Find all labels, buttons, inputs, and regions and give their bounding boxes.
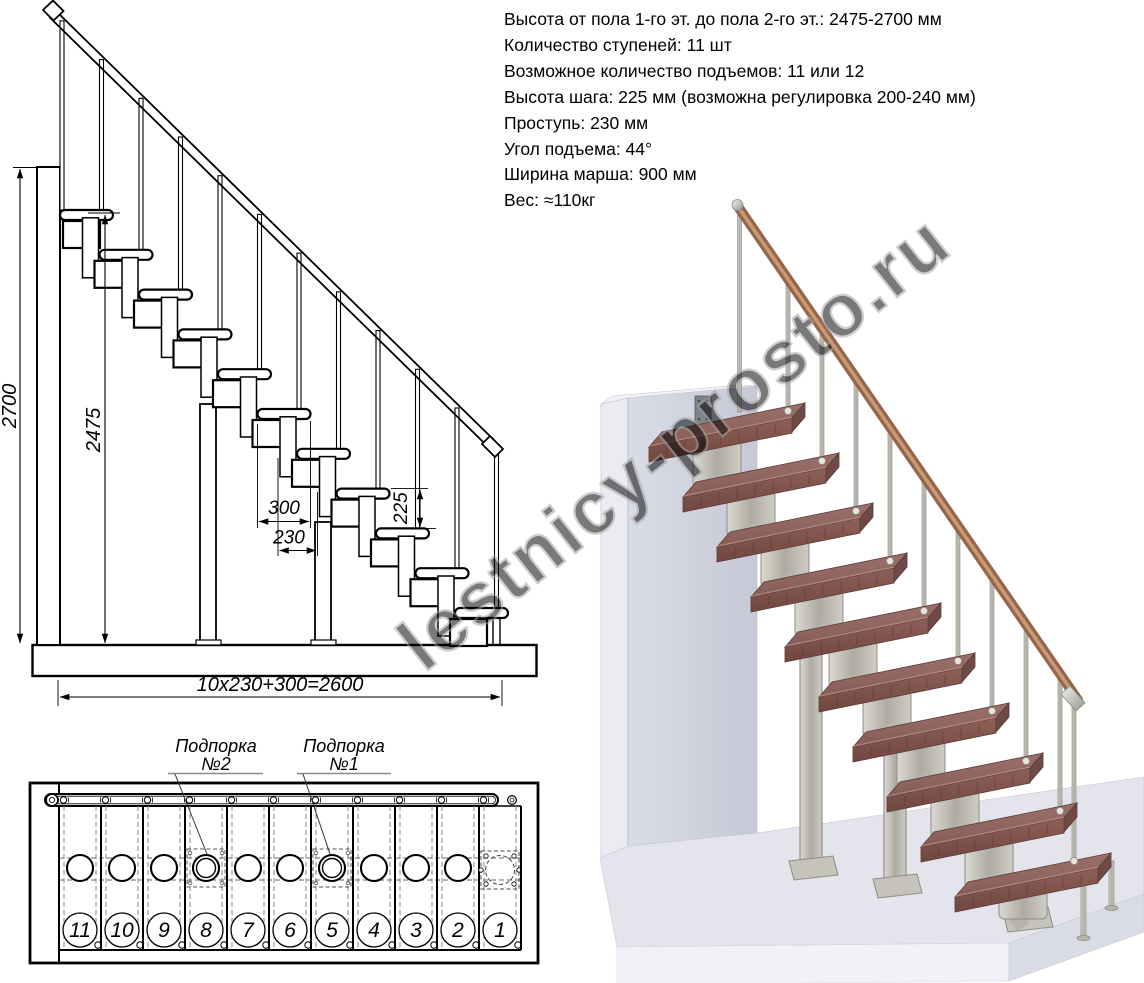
bracket-bolt: [698, 418, 701, 421]
handrail-line: [56, 11, 496, 442]
baluster-3d: [1024, 624, 1028, 761]
support2-label-line1: Подпорка: [175, 736, 256, 756]
baluster-3d: [956, 526, 960, 662]
plan-post-circle: [151, 855, 177, 881]
baluster-joint-3d: [1056, 807, 1063, 814]
baluster-3d: [738, 212, 742, 412]
elevation-baluster: [179, 137, 183, 290]
plan-step-number: 7: [242, 919, 255, 942]
plan-bolt: [484, 882, 488, 886]
baluster-3d: [922, 476, 926, 611]
plan-step-number: 2: [451, 919, 464, 942]
dim-label-225: 225: [391, 492, 412, 525]
spec-line-angle: Угол подъема: 44°: [504, 137, 976, 163]
handrail-end-cap: [1061, 686, 1085, 711]
plan-post-circle: [109, 855, 135, 881]
spec-line-tread: Проступь: 230 мм: [504, 111, 976, 137]
spec-line-step-count: Количество ступеней: 11 шт: [504, 33, 976, 59]
elevation-baluster: [337, 292, 341, 449]
bracket-bolt: [706, 418, 709, 421]
plan-step-number: 11: [69, 919, 91, 942]
post-foot: [311, 640, 336, 645]
stair-drawing-sheet: 2700 2475 10x230+300=2600 300 230 225 11…: [0, 0, 1144, 983]
plan-post-circle: [67, 855, 93, 881]
plan-rail-bolt: [438, 797, 444, 803]
plan-post-circle: [445, 855, 471, 881]
plan-handrail: [45, 794, 516, 806]
elevation-baluster: [495, 447, 499, 608]
elevation-step-module: [450, 619, 487, 646]
wall-bracket: [695, 396, 711, 426]
elevation-baluster: [297, 253, 301, 409]
plan-rail-bolt: [354, 797, 360, 803]
baluster-joint-3d: [1022, 757, 1029, 764]
support-post: [200, 404, 216, 645]
post-foot: [196, 640, 221, 645]
plan-rail-end-bolt: [508, 796, 517, 805]
elevation-handrail: [43, 1, 503, 458]
baluster-joint-3d: [988, 707, 995, 714]
elevation-baluster: [258, 214, 262, 369]
plan-step-number: 1: [494, 919, 506, 942]
plan-rail-bolt: [312, 797, 318, 803]
elevation-steps: [60, 210, 508, 646]
spec-line-width: Ширина марша: 900 мм: [504, 162, 976, 188]
plan-step-number: 10: [110, 919, 134, 942]
support-post-3d: [800, 637, 822, 868]
baluster-joint-3d: [818, 457, 825, 464]
plan-rail-bolt: [228, 797, 234, 803]
plan-rail-bolt: [480, 797, 486, 803]
baluster-3d: [1072, 697, 1076, 861]
leg-foot: [1105, 906, 1118, 911]
dim-label-2475: 2475: [83, 407, 105, 453]
plan-step-number: 9: [158, 919, 170, 942]
plan-rail-bolt: [102, 797, 108, 803]
baluster-joint-3d: [886, 557, 893, 564]
elevation-tread: [455, 608, 508, 618]
plan-rail-bolt: [186, 797, 192, 803]
front-leg-3d: [1081, 884, 1086, 937]
plan-rail-bolt: [396, 797, 402, 803]
dim-label-230: 230: [272, 528, 305, 549]
baluster-3d: [820, 328, 824, 461]
handrail-top-cap: [43, 1, 64, 21]
plan-bolt: [512, 854, 516, 858]
spec-line-rises: Возможное количество подъемов: 11 или 12: [504, 59, 976, 85]
baluster-joint-3d: [784, 407, 791, 414]
plan-post-circle: [235, 855, 261, 881]
elevation-baluster: [218, 176, 222, 330]
plan-rail-cap: [46, 794, 58, 806]
elevation-drawing: 2700 2475 10x230+300=2600 300 230 225: [0, 0, 575, 715]
plan-bolt: [479, 868, 483, 872]
plan-bolt: [484, 854, 488, 858]
handrail-end-cap: [482, 436, 503, 457]
floor-front-face: [617, 943, 1009, 983]
spec-line-rise-height: Высота шага: 225 мм (возможна регулировк…: [504, 85, 976, 111]
upper-floor-stringer: [37, 167, 60, 645]
dim-label-300: 300: [268, 498, 300, 519]
elevation-baluster: [416, 369, 420, 528]
baluster-3d: [786, 279, 790, 411]
plan-view-drawing: 1110987654321 Подпорка №2 Подпорка №1: [0, 715, 575, 983]
plan-rail-bolt: [270, 797, 276, 803]
elevation-baluster: [100, 60, 104, 210]
plan-step-number: 3: [410, 919, 422, 942]
elevation-baluster: [60, 21, 64, 210]
baluster-3d: [990, 575, 994, 711]
floor-slab: [33, 645, 537, 676]
elevation-baluster: [139, 98, 143, 250]
support1-label-line1: Подпорка: [303, 736, 384, 756]
dim-label-total-run: 10x230+300=2600: [197, 674, 364, 696]
bracket-bolt: [698, 400, 701, 403]
support2-label-line2: №2: [201, 754, 231, 774]
plan-post-circle: [277, 855, 303, 881]
bracket-bolt: [706, 400, 709, 403]
spec-line-height: Высота от пола 1-го эт. до пола 2-го эт.…: [504, 7, 976, 33]
baluster-joint-3d: [920, 607, 927, 614]
elevation-baluster: [376, 331, 380, 489]
baluster-joint-3d: [1070, 857, 1077, 864]
wall-side-face: [601, 398, 628, 858]
plan-step-number: 4: [368, 919, 380, 942]
plan-bolt: [512, 882, 516, 886]
specifications-block: Высота от пола 1-го эт. до пола 2-го эт.…: [504, 7, 976, 214]
baluster-3d: [888, 427, 892, 561]
support1-label-line2: №1: [329, 754, 359, 774]
elevation-baluster: [455, 408, 459, 568]
plan-step-number: 6: [284, 919, 296, 942]
plan-post-circle: [403, 855, 429, 881]
leg-foot: [1077, 936, 1090, 941]
baluster-joint-3d: [852, 507, 859, 514]
spec-line-weight: Вес: ≈110кг: [504, 188, 976, 214]
plan-step-number: 8: [200, 919, 212, 942]
plan-post-circle: [361, 855, 387, 881]
plan-rail-bolt: [144, 797, 150, 803]
plan-rail-bolt: [60, 797, 66, 803]
plan-step-number: 5: [326, 919, 338, 942]
baluster-3d: [854, 378, 858, 511]
baluster-joint-3d: [954, 657, 961, 664]
handrail-line: [50, 18, 490, 449]
dim-label-2700: 2700: [0, 384, 21, 430]
